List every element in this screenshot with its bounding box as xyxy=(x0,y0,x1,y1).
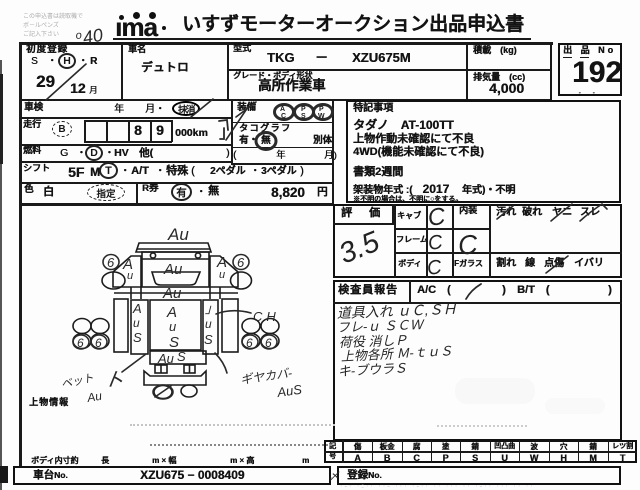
svg-text:Au: Au xyxy=(163,261,183,278)
svg-text:ベット: ベット xyxy=(60,372,95,391)
svg-text:フレ-ｕ ＳＣＷ: フレ-ｕ ＳＣＷ xyxy=(337,317,425,335)
svg-text:40: 40 xyxy=(81,25,104,48)
svg-text:P: P xyxy=(319,106,324,113)
svg-text:C: C xyxy=(426,203,448,232)
svg-text:S: S xyxy=(204,332,213,347)
svg-text:C: C xyxy=(281,113,286,120)
svg-text:u: u xyxy=(127,270,133,282)
svg-text:S: S xyxy=(177,349,186,364)
svg-text:AuS: AuS xyxy=(275,382,303,400)
svg-text:〆: 〆 xyxy=(328,471,340,483)
svg-text:3.5: 3.5 xyxy=(335,225,385,270)
svg-text:6: 6 xyxy=(237,255,245,270)
svg-text:Au: Au xyxy=(157,351,174,366)
svg-text:C: C xyxy=(427,231,445,255)
svg-text:u: u xyxy=(169,319,176,334)
svg-text:C: C xyxy=(426,256,444,280)
svg-text:W: W xyxy=(318,113,325,120)
svg-text:A: A xyxy=(280,106,285,113)
svg-text:Au: Au xyxy=(85,389,103,406)
svg-text:Au: Au xyxy=(162,285,182,302)
svg-text:Au: Au xyxy=(167,225,189,244)
svg-text:u: u xyxy=(133,316,140,330)
svg-text:A: A xyxy=(132,301,142,316)
svg-text:P: P xyxy=(301,106,306,113)
svg-text:キ-ブウラＳ: キ-ブウラＳ xyxy=(337,360,407,379)
svg-text:｣: ｣ xyxy=(205,301,212,316)
svg-text:u: u xyxy=(219,269,225,281)
svg-text:S: S xyxy=(133,330,142,345)
svg-text:CH: CH xyxy=(253,309,280,324)
svg-text:C: C xyxy=(456,229,479,261)
svg-text:S: S xyxy=(301,113,306,120)
svg-text:u: u xyxy=(205,317,212,331)
svg-text:6: 6 xyxy=(107,255,115,270)
